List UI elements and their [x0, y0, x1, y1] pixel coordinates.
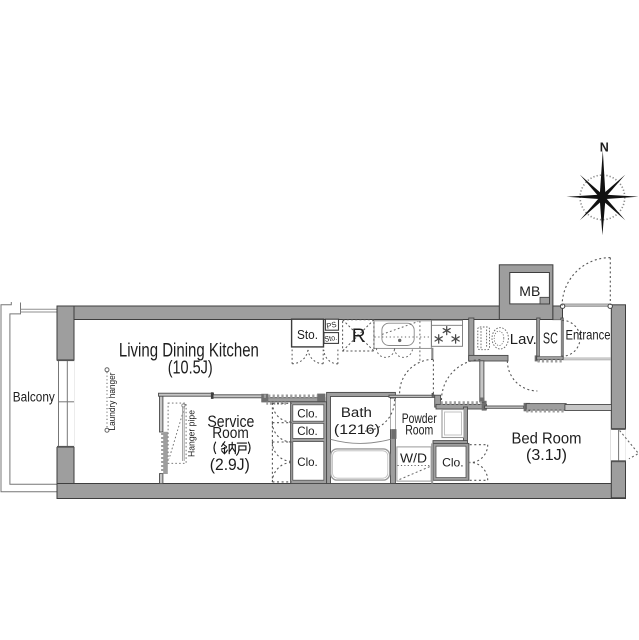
svg-text:Laundry hanger: Laundry hanger — [107, 373, 118, 431]
svg-text:R: R — [352, 326, 366, 347]
svg-text:W/D: W/D — [400, 451, 427, 465]
svg-text:N: N — [600, 141, 609, 155]
svg-text:(1216): (1216) — [334, 421, 380, 437]
svg-text:Bath: Bath — [341, 405, 372, 420]
svg-text:(2.9J): (2.9J) — [210, 455, 250, 474]
svg-text:Lav.: Lav. — [510, 331, 537, 348]
svg-text:Sto.: Sto. — [297, 327, 318, 342]
svg-text:(10.5J): (10.5J) — [168, 358, 213, 378]
svg-text:Clo.: Clo. — [442, 455, 464, 469]
svg-text:SC: SC — [543, 331, 558, 348]
svg-text:Clo.: Clo. — [297, 455, 318, 469]
svg-text:MB: MB — [519, 283, 540, 299]
svg-text:Entrance: Entrance — [566, 328, 611, 343]
svg-text:Clo.: Clo. — [297, 407, 318, 421]
svg-text:(3.1J): (3.1J) — [526, 447, 567, 464]
svg-text:Balcony: Balcony — [13, 390, 55, 405]
svg-text:Room: Room — [212, 425, 249, 442]
svg-text:Hanger pipe: Hanger pipe — [187, 410, 198, 457]
svg-text:Room: Room — [405, 422, 433, 437]
svg-text:Bed Room: Bed Room — [512, 431, 582, 448]
svg-text:Clo.: Clo. — [297, 424, 318, 438]
